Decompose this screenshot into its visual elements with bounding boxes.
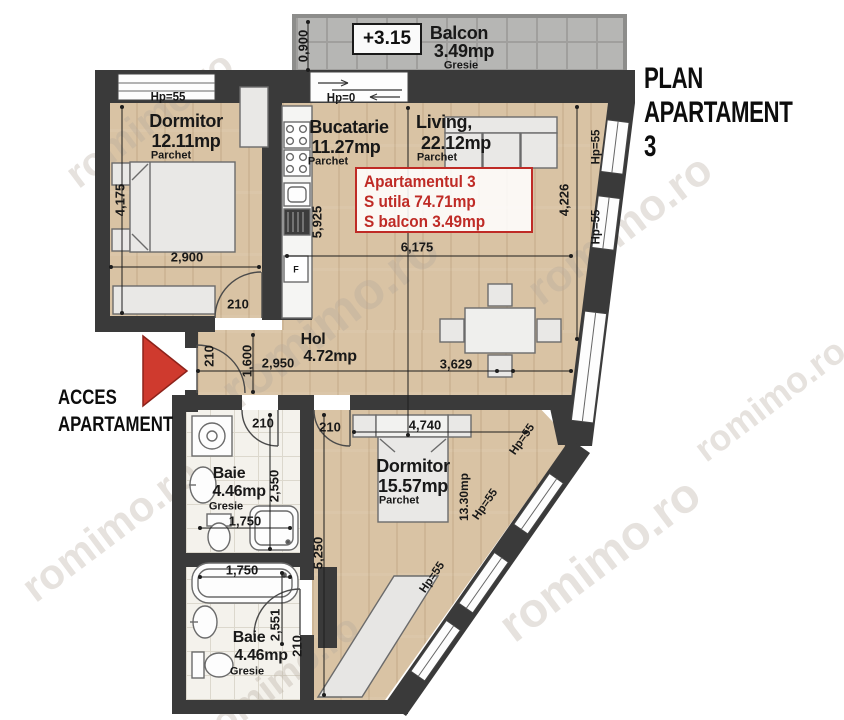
dim-baie1-height: 2,550 [268, 470, 281, 503]
dim-door-baie2: 210 [291, 635, 304, 657]
title-line-2: APARTAMENT [644, 96, 792, 130]
balcony-area: 3.49mp [434, 42, 494, 60]
living-floor-type: Parchet [417, 153, 457, 164]
dim-bucatarie-height: 5,925 [311, 206, 324, 239]
dormitor2-area: 15.57mp [378, 477, 448, 495]
baie1-floor-type: Gresie [209, 502, 243, 513]
bucatarie-floor-type: Parchet [308, 157, 348, 168]
info-title: Apartamentul 3 [364, 172, 513, 192]
page-title: PLAN APARTAMENT 3 [644, 62, 792, 164]
access-line-1: ACCES [58, 384, 173, 411]
balcony-sliding-door [310, 72, 408, 102]
wardrobe-icon-dormitor1-bottom [113, 286, 215, 314]
title-line-1: PLAN [644, 62, 792, 96]
living-area: 22.12mp [421, 134, 491, 152]
dim-door-dormitor1: 210 [227, 298, 249, 311]
dim-baie2-height: 2,551 [269, 609, 282, 642]
dim-bathtub-width: 1,750 [226, 564, 259, 577]
fridge-label: F [293, 266, 299, 275]
hol-name: Hol [301, 332, 326, 348]
dim-door-baie1: 210 [252, 417, 274, 430]
dim-dormitor1-height: 4,175 [114, 184, 127, 217]
baie2-floor-type: Gresie [230, 667, 264, 678]
living-name: Living, [416, 113, 472, 131]
elevation-badge: +3.15 [352, 23, 422, 55]
dim-living-width: 6,175 [401, 241, 434, 254]
dormitor1-name: Dormitor [149, 112, 223, 130]
dim-door-dormitor2: 210 [319, 421, 341, 434]
sink-icon-baie2 [190, 606, 217, 638]
info-utila: S utila 74.71mp [364, 192, 513, 212]
dormitor2-floor-type: Parchet [379, 496, 419, 507]
baie1-name: Baie [213, 466, 246, 482]
dim-hol-width: 2,950 [262, 357, 295, 370]
dormitor2-name: Dormitor [376, 457, 450, 475]
washing-machine-icon [192, 416, 232, 456]
dormitor1-floor-type: Parchet [151, 151, 191, 162]
floor-plan: romimo.ro romimo.ro romimo.ro romimo.ro … [0, 0, 844, 720]
dim-balcony-width: 0,900 [297, 30, 310, 63]
dim-dormitor1-width: 2,900 [171, 251, 204, 264]
title-line-3: 3 [644, 130, 792, 164]
balcony-floor-type: Gresie [444, 61, 478, 72]
balcony-name: Balcon [430, 24, 488, 42]
toilet-icon-baie2 [192, 652, 233, 678]
apartment-info-box: Apartamentul 3 S utila 74.71mp S balcon … [355, 167, 533, 233]
dormitor1-area: 12.11mp [152, 132, 221, 150]
baie2-area: 4.46mp [234, 648, 287, 664]
bucatarie-area: 11.27mp [312, 138, 381, 156]
dim-dormitor2-width: 4,740 [409, 419, 442, 432]
dim-living-table: 3,629 [440, 358, 473, 371]
info-balcon: S balcon 3.49mp [364, 212, 513, 232]
hol-area: 4.72mp [303, 349, 356, 365]
dim-door-entry: 210 [203, 345, 216, 367]
access-label: ACCES APARTAMENT [58, 384, 173, 438]
dim-baie1-width: 1,750 [229, 515, 262, 528]
hp-label-living-window-1: Hp=55 [591, 130, 603, 165]
bed-icon-dormitor1 [112, 162, 235, 252]
hp-label-living-window-2: Hp=55 [591, 210, 603, 245]
bucatarie-name: Bucatarie [309, 118, 388, 136]
dim-living-height: 4,226 [558, 184, 571, 217]
hp-label-dormitor1: Hp=55 [151, 92, 186, 104]
access-line-2: APARTAMENT [58, 411, 173, 438]
baie2-name: Baie [233, 630, 266, 646]
toilet-icon-baie1 [207, 514, 231, 551]
kitchen-counter-icon [282, 106, 312, 318]
hp-label-bucatarie: Hp=0 [327, 93, 355, 105]
dim-hol-height: 1,600 [241, 345, 254, 378]
baie1-area: 4.46mp [212, 484, 265, 500]
wardrobe-icon-dormitor1-top [240, 87, 268, 147]
dim-corridor-height: 5,250 [312, 537, 325, 570]
dim-dormitor2-extra: 13.30mp [458, 473, 470, 521]
